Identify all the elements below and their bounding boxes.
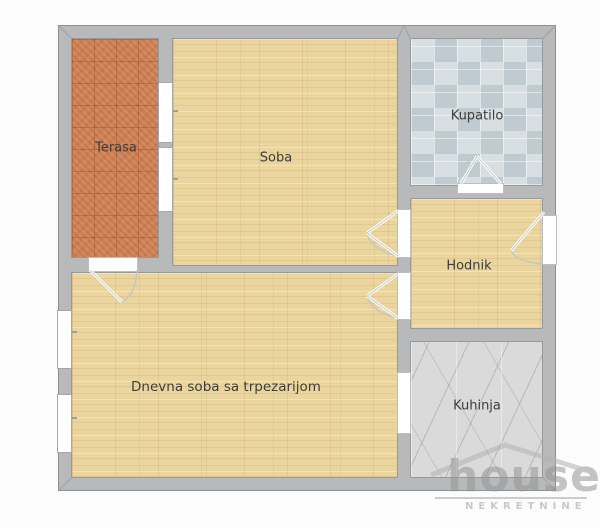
agency-watermark: house NEKRETNINE xyxy=(425,441,597,521)
door-opening-entrance xyxy=(542,215,557,265)
room-label-kupatilo: Kupatilo xyxy=(451,109,504,124)
window-living-room-1 xyxy=(57,310,72,369)
window-mark xyxy=(173,110,178,112)
door-opening-soba-hodnik xyxy=(397,209,411,258)
floorplan-image: Terasa Soba Kupatilo Hodnik Dnevna soba … xyxy=(0,0,600,528)
passage-dnevna-kuhinja xyxy=(397,372,411,434)
room-label-hodnik: Hodnik xyxy=(446,259,491,274)
room-dnevna-soba xyxy=(71,272,398,478)
watermark-divider xyxy=(435,497,587,499)
room-label-terasa: Terasa xyxy=(95,141,137,156)
door-opening-kupatilo xyxy=(457,183,504,194)
window-mark xyxy=(72,331,77,333)
door-opening-dnevna-hodnik xyxy=(397,272,411,320)
door-opening-terasa xyxy=(88,257,138,272)
watermark-tagline-text: NEKRETNINE xyxy=(465,501,587,512)
room-label-dnevna-soba: Dnevna soba sa trpezarijom xyxy=(131,379,321,395)
window-terasa-soba-2 xyxy=(158,147,173,212)
watermark-brand-text: house xyxy=(447,455,600,499)
window-mark xyxy=(72,417,77,419)
window-mark xyxy=(173,178,178,180)
window-terasa-soba-1 xyxy=(158,82,173,143)
room-label-kuhinja: Kuhinja xyxy=(453,399,501,414)
room-label-soba: Soba xyxy=(260,151,292,166)
window-living-room-2 xyxy=(57,394,72,453)
